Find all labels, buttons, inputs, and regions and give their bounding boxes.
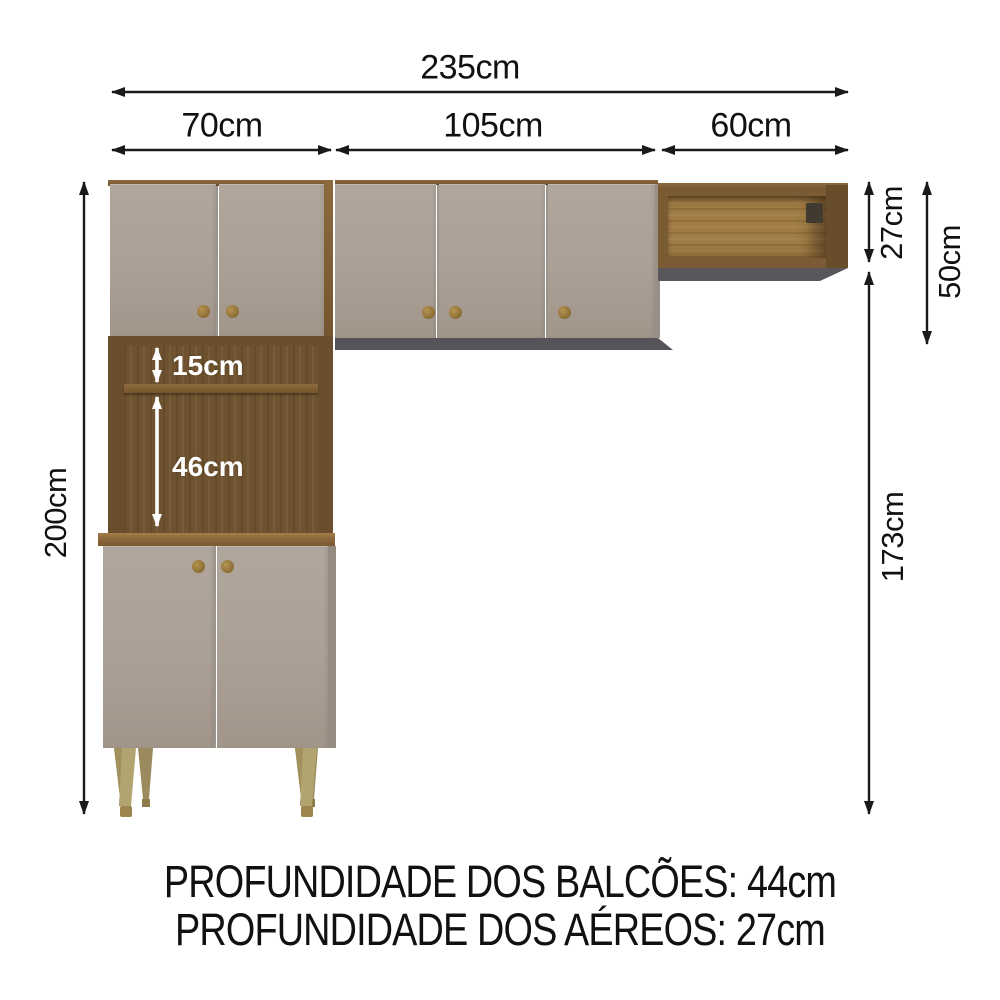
- label-upper-height: 50cm: [932, 225, 968, 299]
- label-lower-height: 173cm: [875, 492, 911, 583]
- footer-depth-counters: PROFUNDIDADE DOS BALCÕES: 44cm: [80, 856, 920, 908]
- label-lower-niche: 46cm: [172, 451, 244, 483]
- label-right-width: 60cm: [710, 107, 791, 146]
- label-shelf-height: 27cm: [874, 186, 910, 260]
- label-total-height: 200cm: [38, 468, 74, 559]
- label-total-width: 235cm: [420, 49, 520, 88]
- label-upper-niche: 15cm: [172, 350, 244, 382]
- footer-depth-wall-units: PROFUNDIDADE DOS AÉREOS: 27cm: [80, 904, 920, 956]
- kitchen-cabinet-dimension-diagram: 235cm 70cm 105cm 60cm 200cm 27cm 50cm 17…: [0, 0, 1000, 1000]
- label-left-width: 70cm: [181, 107, 262, 146]
- dimension-arrows: [0, 0, 1000, 1000]
- label-middle-width: 105cm: [443, 107, 543, 146]
